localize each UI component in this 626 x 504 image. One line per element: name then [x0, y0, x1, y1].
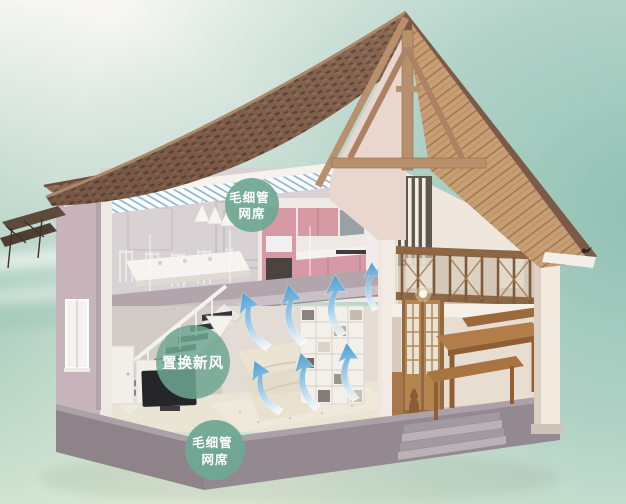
- column-base: [531, 424, 563, 434]
- porch-column: [529, 250, 565, 434]
- side-window: [64, 300, 90, 372]
- collar-beam: [332, 158, 486, 168]
- badge-capillary-mat-lower: 毛细管 网席: [185, 420, 245, 480]
- downspout: [96, 196, 101, 410]
- tv-stand: [160, 406, 180, 411]
- house-hvac-cutaway-illustration: 毛细管 网席 置换新风 毛细管 网席: [0, 0, 626, 504]
- window-sill: [64, 368, 90, 372]
- left-exterior-wall: [56, 182, 112, 424]
- corner-post: [100, 182, 112, 424]
- cooktop: [336, 250, 366, 254]
- wood-stand: [392, 372, 403, 420]
- badge-fresh-air-displacement: 置换新风: [156, 325, 230, 399]
- badge-fresh-air-label: 置换新风: [162, 354, 224, 372]
- kitchen-oven: [266, 258, 292, 280]
- badge-capillary-mat-upper: 毛细管 网席: [225, 178, 279, 232]
- top-strut: [396, 86, 420, 92]
- kitchen-microwave: [266, 236, 292, 252]
